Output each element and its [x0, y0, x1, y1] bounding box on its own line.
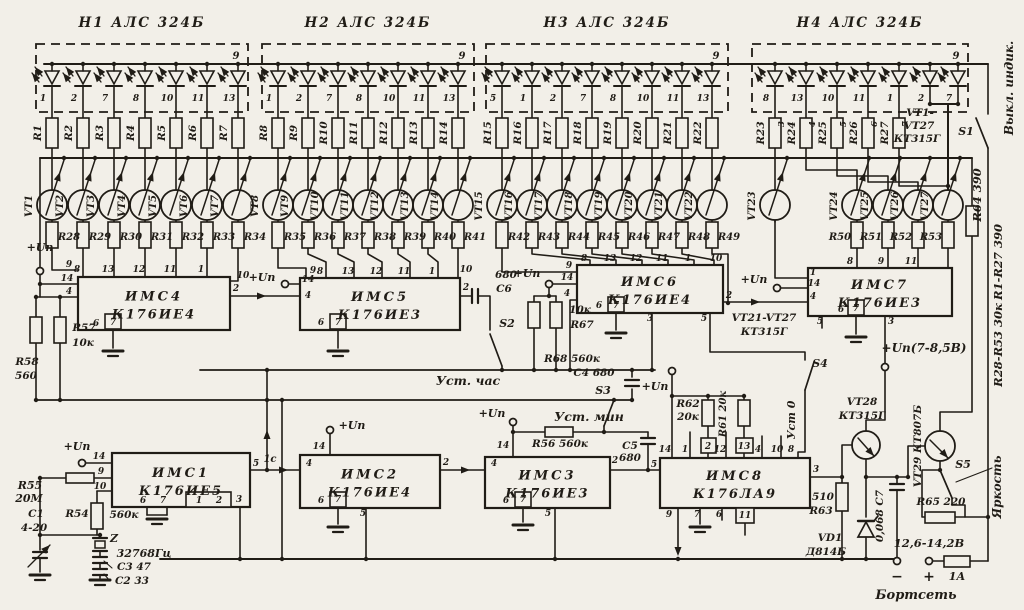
- resistor-label: R32: [181, 232, 204, 243]
- led-H1-1: [45, 71, 59, 84]
- pin-label: 4: [564, 289, 570, 299]
- wire: [806, 148, 857, 190]
- junction: [680, 62, 684, 66]
- led-pin-label: 13: [443, 94, 456, 104]
- resistor-label: R45: [597, 232, 620, 243]
- resistor-R61: [738, 400, 750, 426]
- chip-part: К176ИЕ3: [337, 308, 422, 323]
- arrowhead: [85, 171, 94, 182]
- pin-label: 4: [755, 445, 761, 455]
- arrowhead: [714, 171, 723, 182]
- resistor-label: R18: [572, 121, 584, 146]
- led-pin-label: 10: [161, 94, 174, 104]
- arrowhead: [950, 171, 959, 182]
- transistor-VT29: [925, 431, 955, 461]
- pin-label: 6: [716, 510, 723, 520]
- pin-label: 13: [604, 254, 617, 264]
- pin-label: 2: [611, 456, 618, 466]
- resistor-label: R52: [889, 232, 912, 243]
- led-pin-label: 1: [40, 94, 46, 104]
- junction: [553, 557, 557, 561]
- arrowhead: [624, 171, 633, 182]
- resistor-R6: [201, 118, 213, 148]
- pin-label: 9: [66, 260, 73, 270]
- label: R55: [17, 479, 42, 492]
- junction: [348, 156, 352, 160]
- junction: [676, 557, 680, 561]
- resistor-R22: [706, 118, 718, 148]
- junction: [646, 468, 650, 472]
- junction: [93, 156, 97, 160]
- led-pin-label: 2: [549, 94, 556, 104]
- pin-label: 14: [93, 452, 106, 462]
- pin-label: 14: [808, 279, 821, 289]
- label: 32768Гц: [117, 547, 172, 560]
- junction: [58, 295, 62, 299]
- label: R65 220: [916, 496, 967, 508]
- pin-label: 1: [196, 496, 202, 506]
- led-pin-label: 1: [887, 94, 893, 104]
- pin-label: 8: [74, 265, 81, 275]
- resistor-label: R15: [482, 121, 494, 145]
- pin-label: 14: [302, 275, 315, 285]
- resistor-label: R29: [88, 232, 111, 243]
- label: 12,6-14,2В: [894, 536, 965, 550]
- led-pin-label: 11: [413, 94, 426, 104]
- arrowhead: [240, 171, 249, 182]
- junction: [265, 398, 269, 402]
- pin-label: 9: [666, 510, 673, 520]
- label: 10к: [569, 304, 592, 316]
- pin-label: 14: [313, 442, 326, 452]
- arrowhead: [920, 171, 929, 182]
- arrowhead: [209, 171, 218, 182]
- led-H2-11: [421, 71, 435, 84]
- chip-name: ИМС1: [151, 466, 210, 481]
- wire: [232, 160, 250, 215]
- junction: [928, 102, 932, 106]
- pin-label: 2: [462, 283, 469, 293]
- pin-label: 4: [810, 292, 816, 302]
- pin-label: 5: [253, 459, 259, 469]
- junction: [34, 295, 38, 299]
- junction: [568, 368, 572, 372]
- junction: [288, 156, 292, 160]
- pin-label: 12: [630, 254, 643, 264]
- pin-label: 10: [460, 265, 473, 275]
- pin-label: 9: [98, 467, 105, 477]
- pin-label: 6: [318, 496, 325, 506]
- led-pin-label: 11: [667, 94, 680, 104]
- led-H3-10: [645, 71, 659, 84]
- fuse: [944, 556, 970, 567]
- junction: [280, 557, 284, 561]
- resistor-label: R37: [343, 232, 366, 243]
- resistor-R10: [332, 118, 344, 148]
- resistor-label: R50: [828, 232, 851, 243]
- pin-label: 6: [838, 305, 845, 315]
- pin-label: 4: [491, 459, 497, 469]
- pin-label: 8: [788, 445, 795, 455]
- chip-name: ИМС4: [124, 290, 183, 305]
- minus-terminal: [894, 558, 901, 565]
- transistor-label: VT11: [340, 191, 351, 220]
- junction: [456, 62, 460, 66]
- wire: [775, 220, 808, 278]
- pin-label: 7: [613, 301, 620, 311]
- label: +Uп: [64, 440, 91, 453]
- junction: [396, 62, 400, 66]
- resistor-R14: [452, 118, 464, 148]
- chip-name: ИМС6: [620, 275, 679, 290]
- pin-label: 11: [739, 511, 752, 521]
- junction: [336, 62, 340, 66]
- quartz-Z: [95, 541, 105, 548]
- pin-label: 14: [561, 273, 574, 283]
- junction: [864, 475, 868, 479]
- pin-label: 12: [714, 445, 727, 455]
- junction: [217, 156, 221, 160]
- transistor-label: VT7: [210, 195, 221, 217]
- label: КТ315Г: [740, 326, 788, 338]
- label: R56 560к: [531, 438, 589, 450]
- junction: [946, 184, 950, 188]
- pin-label: 7: [694, 510, 701, 520]
- pin-label: 4: [66, 287, 72, 297]
- led-H4-7: [951, 71, 965, 84]
- junction: [276, 62, 280, 66]
- led-H2-13: [451, 71, 465, 84]
- led-pin-label: 8: [133, 94, 140, 104]
- pin-label: 2: [725, 291, 732, 301]
- label: Z: [109, 532, 119, 545]
- resistor-R4: [139, 118, 151, 148]
- junction: [280, 398, 284, 402]
- resistor-label: R41: [463, 232, 486, 243]
- resistor-label: R33: [212, 232, 235, 243]
- resistor-R13: [422, 118, 434, 148]
- junction: [742, 394, 746, 398]
- schematic-canvas: Н1 АЛС 324Б91278101113Н2 АЛС 324Б9127810…: [0, 0, 1024, 610]
- wire: [942, 160, 960, 215]
- arrowhead: [116, 171, 125, 182]
- label: R62: [675, 398, 699, 410]
- pin-label: 9: [566, 261, 573, 271]
- label: +Uп: [339, 419, 366, 432]
- led-pin-label: 10: [383, 94, 396, 104]
- wire: [940, 470, 952, 498]
- resistor-label: R36: [313, 232, 336, 243]
- pin-label: 6: [596, 301, 603, 311]
- pin-label: 7: [853, 304, 860, 314]
- arrowhead: [594, 171, 603, 182]
- transistor-label: VT26: [890, 191, 901, 220]
- led-H1-10: [169, 71, 183, 84]
- junction: [602, 430, 606, 434]
- junction: [630, 398, 634, 402]
- label: 20М: [14, 492, 43, 505]
- chip-part: К176ИЕ5: [138, 484, 223, 499]
- led-pin-label: 10: [822, 94, 835, 104]
- junction: [364, 557, 368, 561]
- resistor-R35: [272, 222, 284, 248]
- resistor-R65: [925, 512, 955, 523]
- label: R58: [14, 356, 39, 368]
- junction: [630, 368, 634, 372]
- junction: [511, 430, 515, 434]
- chip-part: К176ИЕ3: [504, 487, 589, 502]
- resistor-label: R21: [662, 121, 674, 145]
- pin-label: 10: [771, 445, 784, 455]
- arrowhead: [147, 171, 156, 182]
- pin-label: 5: [651, 460, 657, 470]
- resistor-label: R34: [243, 232, 266, 243]
- led-H4-13: [799, 71, 813, 84]
- resistor-label: R7: [218, 124, 230, 142]
- junction: [532, 368, 536, 372]
- resistor-R19: [616, 118, 628, 148]
- pin-label: 10: [94, 482, 107, 492]
- label: VT27: [904, 120, 935, 132]
- resistor-label: R14: [438, 121, 450, 145]
- junction: [306, 62, 310, 66]
- resistor-label: R40: [433, 232, 456, 243]
- pin-label: 6: [140, 496, 147, 506]
- pin-label: 8: [317, 267, 324, 277]
- led-pin-label: 7: [580, 94, 587, 104]
- resistor-label: R12: [378, 121, 390, 145]
- junction: [62, 156, 66, 160]
- resistor-label: R43: [537, 232, 560, 243]
- wire: [104, 561, 112, 568]
- arrowhead: [534, 171, 543, 182]
- wire-tag: 3: [777, 121, 787, 127]
- label: S2: [499, 317, 515, 330]
- resistor-label: R47: [657, 232, 680, 243]
- junction: [804, 62, 808, 66]
- junction: [895, 475, 899, 479]
- arrowhead: [461, 467, 470, 474]
- junction: [112, 62, 116, 66]
- arrowhead: [264, 430, 271, 439]
- arrowhead: [370, 171, 379, 182]
- pin-label: 3: [236, 495, 242, 505]
- resistor-label: R19: [602, 121, 614, 146]
- junction: [98, 533, 102, 537]
- led-pin-label: 11: [853, 94, 866, 104]
- label: R67: [569, 319, 594, 331]
- resistor-R21: [676, 118, 688, 148]
- wire-tag: 6: [870, 121, 880, 127]
- junction: [155, 156, 159, 160]
- label: VT1-: [906, 107, 934, 119]
- label: +Uп: [479, 407, 506, 420]
- led-H1-8: [138, 71, 152, 84]
- led-pin-label: 7: [326, 94, 333, 104]
- pin-label: 1: [429, 267, 435, 277]
- junction: [897, 62, 901, 66]
- resistor-label: R51: [859, 232, 882, 243]
- led-H3-8: [615, 71, 629, 84]
- pin-label: 9: [953, 51, 960, 62]
- resistor-label: R11: [348, 121, 360, 145]
- arrowhead: [178, 171, 187, 182]
- chip-name: ИМС3: [517, 469, 576, 484]
- junction: [938, 468, 942, 472]
- label: 510: [812, 491, 835, 503]
- transistor-label: VT25: [860, 191, 871, 220]
- transistor-label: VT21: [654, 191, 665, 220]
- junction: [468, 156, 472, 160]
- zener-VD1: [858, 522, 874, 537]
- transistor-label: VT22: [684, 191, 695, 220]
- label: С2 33: [115, 575, 149, 587]
- resistor-label: R16: [512, 121, 524, 146]
- junction: [500, 368, 504, 372]
- pin-label: 7: [160, 496, 167, 506]
- transistor-label: VT15: [474, 191, 485, 220]
- pin-label: 1: [685, 254, 691, 264]
- resistor-label: R30: [119, 232, 142, 243]
- junction: [378, 156, 382, 160]
- arrowhead: [675, 547, 682, 556]
- label: VT21-VT27: [732, 312, 797, 324]
- junction: [956, 62, 960, 66]
- resistor-R12: [392, 118, 404, 148]
- pin-label: 6: [318, 318, 325, 328]
- upn-terminal: [37, 268, 44, 275]
- transistor-label: VT10: [310, 191, 321, 220]
- pin-label: 13: [102, 265, 115, 275]
- pin-label: 9: [233, 51, 240, 62]
- led-pin-label: 10: [637, 94, 650, 104]
- resistor-label: R24: [786, 121, 798, 145]
- label: С5: [622, 440, 638, 452]
- resistor-R57: [54, 317, 66, 343]
- resistor-label: R44: [567, 232, 590, 243]
- pin-label: 9: [459, 51, 466, 62]
- transistor-label: VT18: [564, 191, 575, 220]
- resistor-R42: [496, 222, 508, 248]
- pin-label: 10: [710, 254, 723, 264]
- junction: [864, 557, 868, 561]
- junction: [438, 156, 442, 160]
- pin-label: 1: [810, 268, 816, 278]
- pin-label: 4: [305, 291, 311, 301]
- junction: [248, 156, 252, 160]
- arrowhead: [280, 171, 289, 182]
- label: С1: [28, 508, 44, 520]
- pin-label: 7: [520, 495, 527, 505]
- transistor-label: VT16: [504, 191, 515, 220]
- arrowhead: [54, 171, 63, 182]
- pin-label: 9: [713, 51, 720, 62]
- junction: [186, 156, 190, 160]
- junction: [530, 62, 534, 66]
- resistor-R1: [46, 118, 58, 148]
- arrowhead: [777, 171, 786, 182]
- junction: [547, 294, 551, 298]
- junction: [512, 156, 516, 160]
- resistor-label: R27: [879, 121, 891, 146]
- resistor-R15: [496, 118, 508, 148]
- pin-label: 3: [647, 314, 653, 324]
- junction: [34, 398, 38, 402]
- junction: [650, 62, 654, 66]
- transistor-label: VT14: [430, 191, 441, 220]
- label: +Uп(7-8,5В): [882, 341, 967, 355]
- label: 1А: [949, 570, 966, 583]
- wire: [452, 160, 470, 215]
- junction: [560, 62, 564, 66]
- arrowhead: [654, 171, 663, 182]
- resistor-R18: [586, 118, 598, 148]
- label: VT28: [847, 396, 878, 408]
- pin-label: 8: [847, 257, 854, 267]
- junction: [928, 62, 932, 66]
- label: Яркость: [990, 455, 1004, 519]
- wire: [478, 296, 490, 330]
- resistor-label: R2: [63, 125, 75, 142]
- transistor-label: VT8: [250, 195, 261, 217]
- resistor-label: R20: [632, 121, 644, 146]
- pin-label: 14: [61, 274, 74, 284]
- led-H3-7: [585, 71, 599, 84]
- junction: [238, 557, 242, 561]
- resistor-R56: [545, 427, 573, 437]
- pin-label: 1: [198, 265, 204, 275]
- label: 680: [619, 452, 642, 464]
- led-pin-label: 7: [102, 94, 109, 104]
- label: 680: [495, 269, 518, 281]
- upn-terminal: [669, 368, 676, 375]
- junction: [500, 62, 504, 66]
- led-H4-8: [768, 71, 782, 84]
- junction: [866, 62, 870, 66]
- resistor-R3: [108, 118, 120, 148]
- resistor-R11: [362, 118, 374, 148]
- junction: [692, 156, 696, 160]
- label: S5: [955, 458, 971, 471]
- label: КТ315Г: [893, 133, 941, 145]
- junction: [408, 156, 412, 160]
- transistor-label: VT9: [280, 195, 291, 217]
- led-H4-2: [923, 71, 937, 84]
- label: +Uп: [642, 380, 669, 393]
- chip-part: К176ИЕ4: [607, 293, 692, 308]
- junction: [602, 156, 606, 160]
- led-pin-label: 13: [791, 94, 804, 104]
- junction: [773, 62, 777, 66]
- transistor-label: VT2: [55, 195, 66, 217]
- label: С6: [496, 283, 512, 295]
- led-H1-7: [107, 71, 121, 84]
- led-H2-7: [331, 71, 345, 84]
- pin-label: 12: [370, 267, 383, 277]
- resistor-R58: [30, 317, 42, 343]
- label: R54: [64, 508, 88, 520]
- junction: [835, 62, 839, 66]
- label: R57: [71, 322, 96, 334]
- pin-label: 13: [342, 267, 355, 277]
- junction: [81, 62, 85, 66]
- pin-label: 14: [497, 441, 510, 451]
- junction: [590, 62, 594, 66]
- upn-terminal: [282, 281, 289, 288]
- label: +Uп: [27, 241, 54, 254]
- led-pin-label: 13: [697, 94, 710, 104]
- label: 4-20: [21, 522, 48, 534]
